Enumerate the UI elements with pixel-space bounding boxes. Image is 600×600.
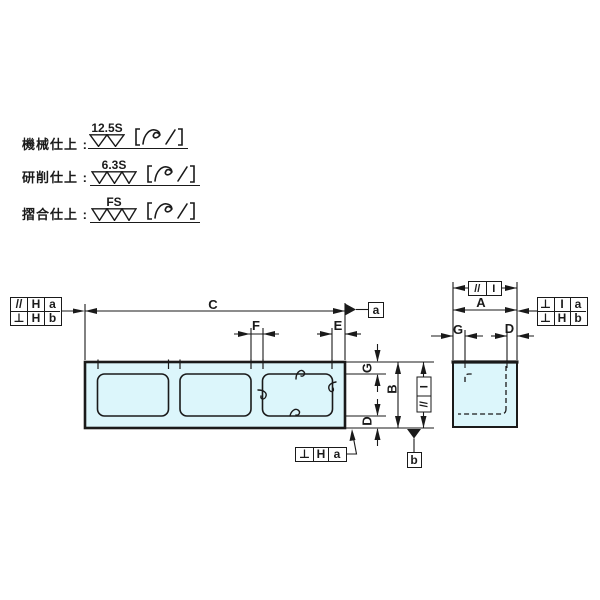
dim-label-C: C <box>203 297 223 312</box>
datum-box-a: a <box>368 302 384 318</box>
datum-a-triangle <box>345 304 368 316</box>
tolerance-frame-side-top: // I <box>468 281 502 296</box>
dim-label-F: F <box>248 318 264 333</box>
dim-label-B: B <box>385 381 399 398</box>
dim-label-D-side: D <box>502 321 517 336</box>
drawing-linework <box>0 0 600 600</box>
perpendicularity-symbol: ⊥ <box>538 312 555 325</box>
tolerance-frame-front-bottom: ⊥ H a <box>295 447 347 462</box>
tolerance-frame-front-vertical: // I <box>416 377 431 413</box>
tolerance-datum: H <box>314 448 329 461</box>
tolerance-datum: I <box>417 378 430 397</box>
tolerance-datum: I <box>487 282 502 295</box>
dim-line-G-front <box>375 344 381 392</box>
tolerance-datum: H <box>555 312 571 325</box>
tolerance-ref: b <box>45 312 60 325</box>
side-view-block <box>453 362 517 427</box>
drawing-sheet: 機械仕上 : 12.5S 研削仕上 : 6.3S <box>0 0 600 600</box>
perpendicularity-symbol: ⊥ <box>296 448 314 461</box>
perpendicularity-symbol: ⊥ <box>11 312 28 325</box>
tolerance-datum: H <box>28 298 45 312</box>
tolerance-datum: I <box>555 298 571 312</box>
parallelism-symbol: // <box>11 298 28 312</box>
datum-b-triangle <box>407 429 421 452</box>
dim-label-D-front: D <box>360 413 374 430</box>
tolerance-ref: a <box>329 448 345 461</box>
tolerance-ref: a <box>45 298 60 312</box>
datum-box-b: b <box>407 452 422 468</box>
tolerance-datum: H <box>28 312 45 325</box>
leader-front-left-frame <box>62 309 85 314</box>
dim-label-G-front: G <box>360 360 374 377</box>
leader-side-right-frame <box>517 308 537 314</box>
tolerance-ref: b <box>571 312 586 325</box>
leader-front-bottom-frame <box>347 429 357 454</box>
tolerance-frame-front-left: // H a ⊥ H b <box>10 297 62 326</box>
tolerance-ref: a <box>571 298 586 312</box>
dim-line-D-front <box>375 399 381 446</box>
dim-label-G-side: G <box>450 322 466 337</box>
parallelism-symbol: // <box>417 396 430 412</box>
perpendicularity-symbol: ⊥ <box>538 298 555 312</box>
parallelism-symbol: // <box>469 282 487 295</box>
dim-label-A: A <box>473 295 489 310</box>
front-view-block <box>85 362 345 428</box>
tolerance-frame-side-right: ⊥ I a ⊥ H b <box>537 297 588 326</box>
dim-label-E: E <box>331 318 345 333</box>
